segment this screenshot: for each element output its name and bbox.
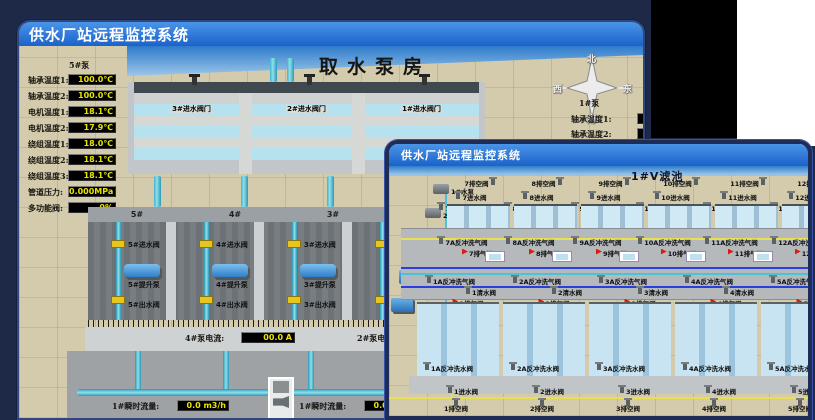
reading-label: 绕组温度1:: [28, 139, 69, 150]
flow-meter-top: [273, 381, 289, 393]
pump-bay: 4#进水阀 4#提升泵 4#出水阀: [176, 222, 264, 320]
washwater-valve[interactable]: 2A反冲洗水阀: [491, 356, 577, 375]
drain-valve[interactable]: 1排空阀: [413, 400, 499, 413]
valve-icon: [425, 364, 429, 370]
inlet-gate-valves: 3#进水阀门 2#进水阀门 1#进水阀门: [134, 96, 479, 115]
filter-pool-scene: 1#V滤池 1#水泵 2#水泵 3#水泵: [389, 166, 808, 416]
fan-icon: [391, 298, 413, 312]
gate-valve-icon: [192, 74, 197, 85]
inlet-valve[interactable]: 1进水阀: [419, 379, 505, 398]
lift-pump-icon[interactable]: [124, 264, 160, 277]
reading-value: 100.0℃: [68, 74, 116, 85]
filter-cell[interactable]: [514, 204, 577, 228]
inlet-valve-label: 4#进水阀: [216, 240, 248, 250]
instrument-icon: [686, 251, 706, 262]
lift-pump-icon[interactable]: [212, 264, 248, 277]
reading-label: 轴承温度2:: [28, 91, 69, 102]
filter-cell[interactable]: [782, 204, 808, 228]
outlet-valve-label: 3#出水阀: [304, 300, 336, 310]
reading-value: 100.0℃: [68, 90, 116, 101]
valve-label: 2排空阀: [530, 406, 554, 413]
compass-west: 西: [553, 82, 562, 95]
lift-pump-label: 3#提升泵: [304, 280, 336, 290]
pipe-stub: [241, 176, 248, 207]
flow1-value: 0.0 m3/h: [177, 400, 229, 411]
valve-icon: [491, 179, 495, 185]
drain-valve[interactable]: 5排空阀: [757, 400, 808, 413]
instrument-icon: [485, 251, 505, 262]
flow1-label: 1#瞬时流量:: [112, 401, 159, 412]
valve-icon: [792, 387, 796, 393]
inlet-valve[interactable]: 4进水阀: [677, 379, 763, 398]
pump4-current-label: 4#泵电流:: [185, 333, 224, 344]
pipe-stub: [154, 176, 161, 207]
valve-label: 3A反冲洗水阀: [603, 365, 645, 373]
valve-icon: [712, 400, 716, 406]
bay-number: 3#: [284, 207, 382, 222]
pump-window-titlebar: 供水厂站远程监控系统: [19, 22, 643, 46]
reading-value: 18.0℃: [68, 138, 116, 149]
valve-icon: [558, 179, 562, 185]
compass-east: 东: [623, 82, 632, 95]
page-background: 供水厂站远程监控系统 取水泵房 北 西 南 东 5#泵: [0, 0, 815, 420]
flow-meter-valve: [273, 396, 289, 408]
reading-value: 18.1℃: [68, 154, 116, 165]
valve-label: 4排空阀: [702, 406, 726, 413]
outlet-valve-icon[interactable]: [111, 296, 125, 304]
instrument-box[interactable]: [528, 251, 595, 262]
inlet-valve-icon[interactable]: [199, 240, 213, 248]
valve-icon: [620, 387, 624, 393]
reading-label: 绕组温度3:: [28, 171, 69, 182]
reading-label: 电机温度1:: [28, 107, 69, 118]
filter-cell[interactable]: [447, 204, 510, 228]
valve-icon: [540, 400, 544, 406]
valve-icon: [694, 179, 698, 185]
gate-valve-icon: [422, 74, 427, 85]
pump-bay: 3#进水阀 3#提升泵 3#出水阀: [264, 222, 352, 320]
reading-label: 轴承温度1:: [28, 75, 69, 86]
valve-label: 1进水阀: [454, 388, 478, 396]
valve-label: 5排空阀: [788, 406, 808, 413]
washwater-valve[interactable]: 5A反冲洗水阀: [749, 356, 808, 375]
valve-icon: [761, 179, 765, 185]
filter-pool-window: 供水厂站远程监控系统 1#V滤池 1#水泵 2#水泵 3#水泵: [385, 140, 812, 420]
outlet-valve-icon[interactable]: [199, 296, 213, 304]
corner-black-region: [651, 0, 737, 138]
pump-bay: 5#进水阀 5#提升泵 5#出水阀: [88, 222, 176, 320]
valve-label: 1排空阀: [444, 406, 468, 413]
valve-icon: [769, 364, 773, 370]
washwater-valve[interactable]: 4A反冲洗水阀: [663, 356, 749, 375]
valve-icon: [706, 387, 710, 393]
pump1-panel-header: 1#泵: [579, 98, 599, 109]
valve-icon: [511, 364, 515, 370]
inlet-valve-label: 3#进水阀: [304, 240, 336, 250]
reading-label: 轴承温度1:: [571, 114, 612, 125]
inlet-gate-valve[interactable]: 3#进水阀门: [134, 96, 249, 115]
valve-icon: [683, 364, 687, 370]
outlet-valve-label: 4#出水阀: [216, 300, 248, 310]
reading-value: [637, 128, 643, 139]
inlet-valve[interactable]: 5进水阀: [763, 379, 808, 398]
valve-label: 2A反冲洗水阀: [517, 365, 559, 373]
instrument-boxes: [461, 251, 808, 262]
flow2-label: 1#瞬时流量:: [299, 401, 346, 412]
valve-icon: [625, 179, 629, 185]
filter-window-titlebar: 供水厂站远程监控系统: [389, 144, 808, 166]
walkway-beam: [134, 116, 479, 126]
reading-label: 管道压力:: [28, 187, 63, 198]
valve-icon: [448, 387, 452, 393]
pipe-stub: [327, 176, 334, 207]
reading-value: 18.1℃: [68, 170, 116, 181]
gate-valve-label: 3#进水阀门: [171, 105, 212, 113]
reading-label: 轴承温度2:: [571, 129, 612, 140]
far-filter-cells: [447, 204, 808, 228]
instrument-icon: [619, 251, 639, 262]
reading-label: 绕组温度2:: [28, 155, 69, 166]
washwater-valve[interactable]: 3A反冲洗水阀: [577, 356, 663, 375]
pipe-stub: [135, 351, 141, 389]
valve-label: 3排空阀: [616, 406, 640, 413]
near-washwater-valves: 1A反冲洗水阀2A反冲洗水阀3A反冲洗水阀4A反冲洗水阀5A反冲洗水阀6A反冲洗…: [405, 356, 808, 375]
inlet-valve-label: 5#进水阀: [128, 240, 160, 250]
pump-pipe: [204, 222, 209, 320]
flow-meter[interactable]: [268, 377, 294, 418]
pipe-stub: [270, 58, 277, 82]
reading-label: 电机温度2:: [28, 123, 69, 134]
valve-label: 5A反冲洗水阀: [775, 365, 808, 373]
drain-valve[interactable]: 2排空阀: [499, 400, 585, 413]
drain-valve[interactable]: 4排空阀: [671, 400, 757, 413]
filter-cell[interactable]: [581, 204, 644, 228]
inlet-gate-valve[interactable]: 1#进水阀门: [364, 96, 479, 115]
pump-window-title: 供水厂站远程监控系统: [29, 24, 189, 45]
filter-cell[interactable]: [715, 204, 778, 228]
lift-pump-label: 4#提升泵: [216, 280, 248, 290]
pipe-stub: [223, 351, 229, 389]
bay-number: 5#: [88, 207, 186, 222]
reading-value: 0.000MPa: [68, 186, 116, 197]
valve-icon: [534, 387, 538, 393]
gate-valve-icon: [307, 74, 312, 85]
instrument-box[interactable]: [662, 251, 729, 262]
valve-icon: [798, 400, 802, 406]
inlet-valve[interactable]: 2进水阀: [505, 379, 591, 398]
outlet-valve-label: 5#出水阀: [128, 300, 160, 310]
valve-label: 1A反冲洗水阀: [431, 365, 473, 373]
valve-label: 2进水阀: [540, 388, 564, 396]
near-drain-valves: 1排空阀2排空阀3排空阀4排空阀5排空阀6排空阀: [413, 400, 808, 413]
pipe-stub: [308, 351, 314, 389]
instrument-box[interactable]: [796, 251, 808, 262]
inlet-valve-icon[interactable]: [111, 240, 125, 248]
reading-value: [637, 113, 643, 124]
lift-pump-icon[interactable]: [300, 264, 336, 277]
pump4-current-value: 00.0 A: [241, 332, 295, 343]
filter-window-title: 供水厂站远程监控系统: [401, 147, 521, 163]
valve-label: 3进水阀: [626, 388, 650, 396]
filter-cell[interactable]: [648, 204, 711, 228]
pump5-panel-header: 5#泵: [69, 60, 89, 71]
valve-icon: [427, 277, 431, 283]
washwater-valve[interactable]: 1A反冲洗水阀: [405, 356, 491, 375]
instrument-box[interactable]: [729, 251, 796, 262]
valve-icon: [439, 238, 443, 244]
scene-title: 取水泵房: [319, 52, 431, 79]
bay-number: 4#: [186, 207, 284, 222]
drain-valve[interactable]: 3排空阀: [585, 400, 671, 413]
near-inlet-valves: 1进水阀2进水阀3进水阀4进水阀5进水阀6进水阀: [419, 379, 808, 398]
instrument-icon: [753, 251, 773, 262]
inlet-valve[interactable]: 3进水阀: [591, 379, 677, 398]
instrument-box[interactable]: [595, 251, 662, 262]
pipe-stub: [287, 58, 294, 82]
pump-pipe: [116, 222, 121, 320]
lift-pump-label: 5#提升泵: [128, 280, 160, 290]
water-channel: [134, 126, 479, 138]
valve-icon: [439, 204, 443, 210]
gate-valve-label: 2#进水阀门: [286, 105, 327, 113]
instrument-icon: [552, 251, 572, 262]
instrument-box[interactable]: [461, 251, 528, 262]
reading-value: 17.9℃: [68, 122, 116, 133]
pump-pipe: [292, 222, 297, 320]
outlet-valve-icon[interactable]: [287, 296, 301, 304]
valve-icon: [626, 400, 630, 406]
central-gallery: 7A反冲洗气阀8A反冲洗气阀9A反冲洗气阀10A反冲洗气阀11A反冲洗气阀12A…: [401, 228, 808, 300]
inlet-gate-valve[interactable]: 2#进水阀门: [249, 96, 364, 115]
valve-label: 4进水阀: [712, 388, 736, 396]
reading-value: 18.1℃: [68, 106, 116, 117]
corner-white-region: [737, 0, 815, 146]
valve-icon: [597, 364, 601, 370]
compass-north: 北: [587, 52, 596, 65]
gate-valve-label: 1#进水阀门: [401, 105, 442, 113]
reading-label: 多功能阀:: [28, 203, 63, 214]
valve-label: 4A反冲洗水阀: [689, 365, 731, 373]
valve-icon: [454, 400, 458, 406]
valve-label: 5进水阀: [798, 388, 808, 396]
inlet-valve-icon[interactable]: [287, 240, 301, 248]
